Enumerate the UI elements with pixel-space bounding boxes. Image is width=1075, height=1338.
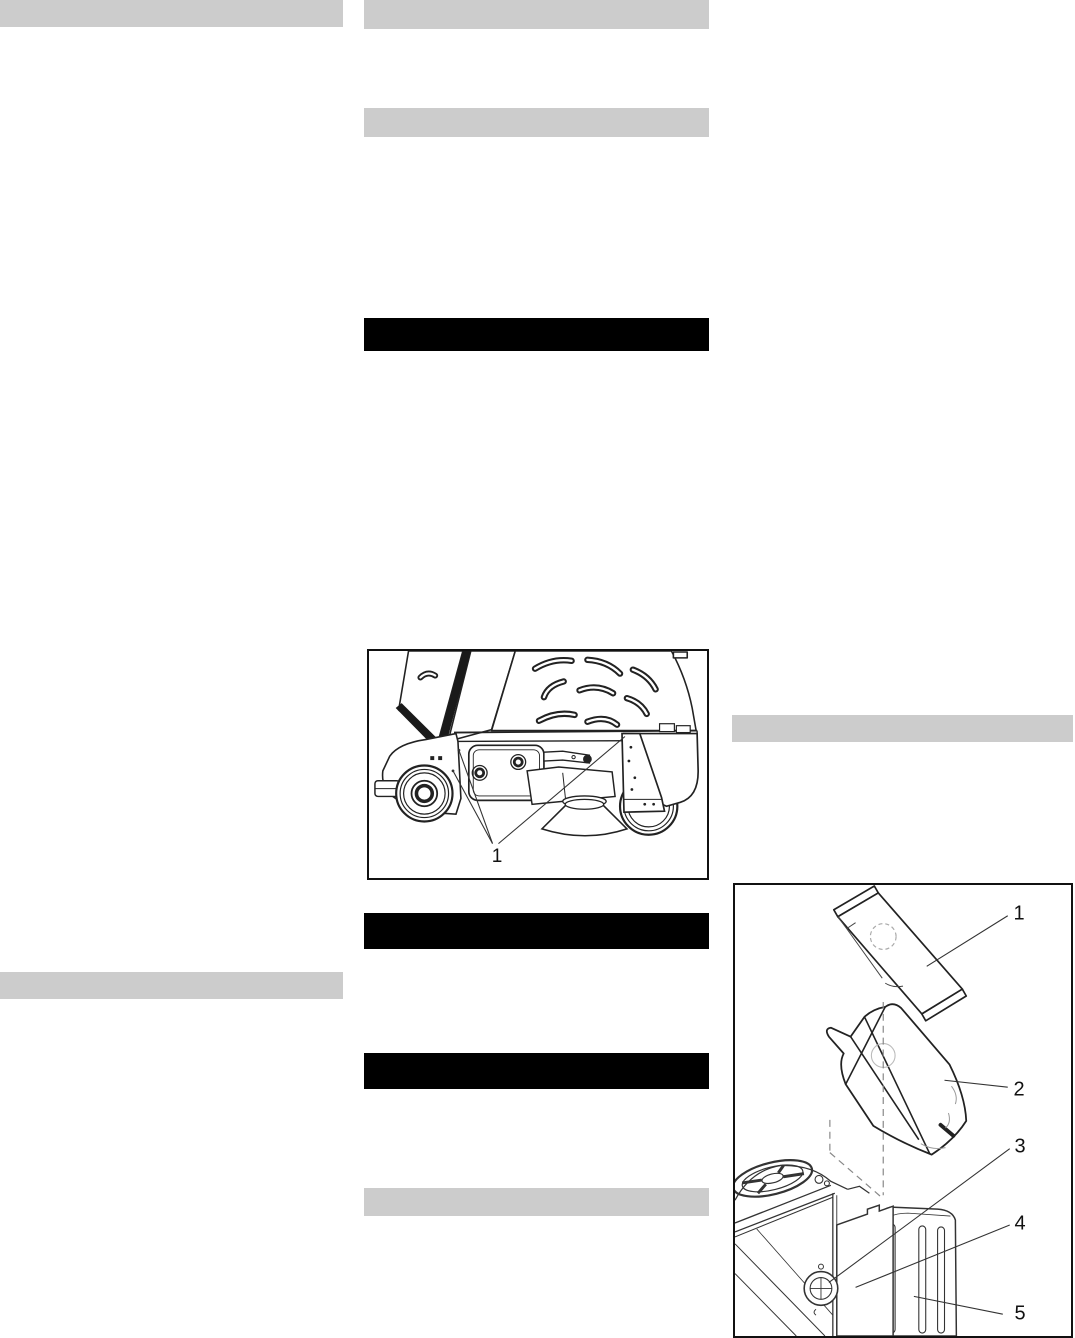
machine-side-view-illustration — [369, 651, 707, 878]
figure-machine-side-view: 1 — [367, 649, 709, 880]
redacted-subheading-bar-right — [732, 715, 1073, 742]
dash-details — [815, 1175, 829, 1185]
callout-4-label: 4 — [1014, 1214, 1025, 1234]
redacted-subheading-bar-left-bottom — [0, 972, 343, 999]
redacted-subheading-bar-left-top — [0, 0, 343, 27]
redacted-heading-bar-mid-1 — [364, 318, 709, 351]
bag-installation-illustration — [735, 885, 1071, 1336]
callout-1-label: 1 — [492, 847, 503, 866]
open-dust-bag — [827, 1004, 966, 1154]
support-arm — [544, 751, 592, 763]
callout-3-label: 3 — [1014, 1137, 1025, 1157]
callout-5-label: 5 — [1014, 1304, 1025, 1324]
callout-2-label: 2 — [1013, 1080, 1024, 1100]
redacted-subheading-bar-mid-2 — [364, 108, 709, 137]
manual-page: 1 — [0, 0, 1075, 1338]
figure-bag-installation: 1 2 3 4 5 — [733, 883, 1073, 1338]
callout-1-label: 1 — [1013, 904, 1024, 924]
redacted-heading-bar-mid-2 — [364, 913, 709, 949]
redacted-subheading-bar-mid-bottom — [364, 1188, 709, 1216]
rear-wheel — [396, 765, 452, 821]
redacted-subheading-bar-mid-top — [364, 0, 709, 29]
redacted-heading-bar-mid-3 — [364, 1053, 709, 1089]
